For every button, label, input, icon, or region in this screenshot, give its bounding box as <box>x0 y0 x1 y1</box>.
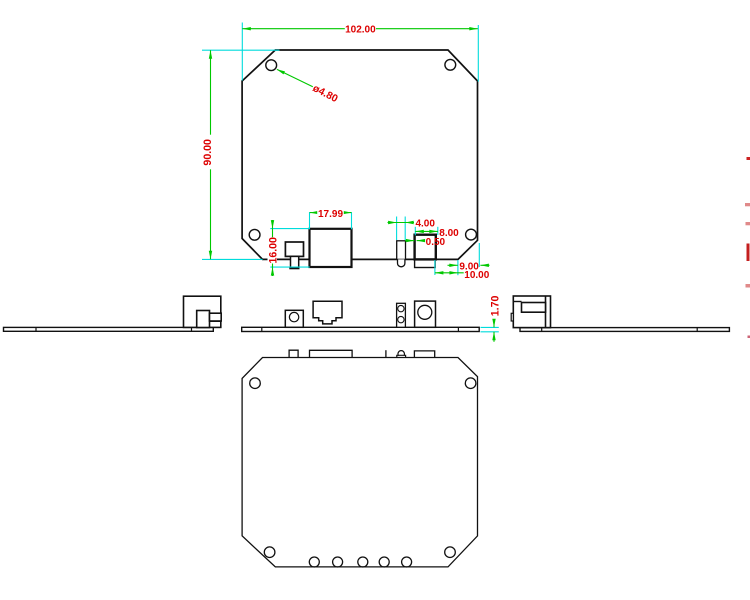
svg-text:4.00: 4.00 <box>415 218 435 229</box>
svg-text:16.00: 16.00 <box>267 237 279 264</box>
svg-text:10.00: 10.00 <box>464 270 489 281</box>
svg-text:0.50: 0.50 <box>426 237 446 248</box>
svg-text:90.00: 90.00 <box>202 139 214 166</box>
svg-text:102.00: 102.00 <box>345 25 376 36</box>
svg-text:1.70: 1.70 <box>489 295 501 316</box>
svg-text:17.99: 17.99 <box>318 209 343 220</box>
